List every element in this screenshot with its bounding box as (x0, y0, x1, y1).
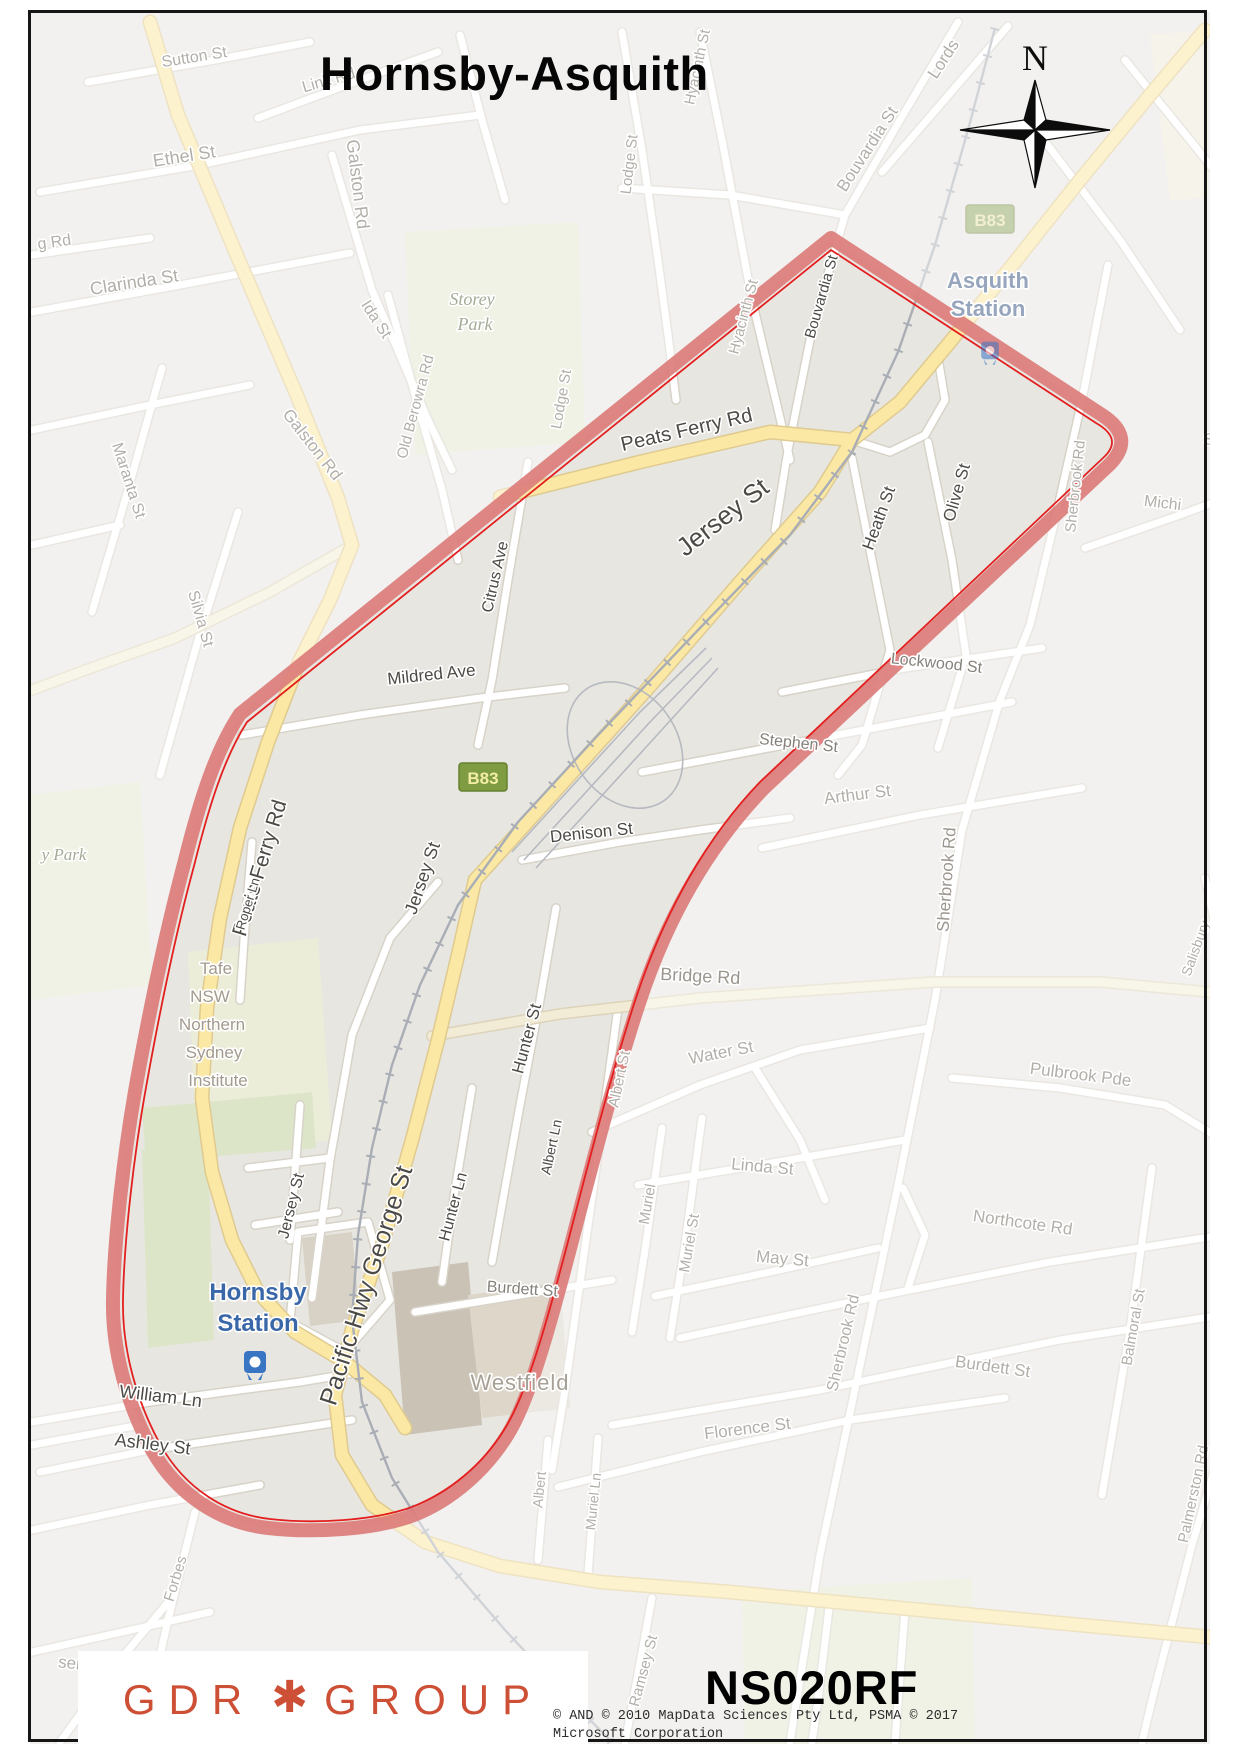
park-hornsby-nw-park-b (142, 1144, 214, 1348)
svg-text:Hornsby: Hornsby (209, 1279, 307, 1306)
route-badge-b83-0: B83 (459, 763, 507, 791)
label-y-park: y Park (40, 845, 87, 864)
building-westfield-block-a (392, 1262, 482, 1435)
compass-rose: N (940, 18, 1130, 208)
label-tafe: Tafe (200, 959, 232, 978)
label-institute: Institute (188, 1071, 248, 1090)
logo-star-icon: ✱ (271, 1676, 308, 1720)
svg-text:Station: Station (951, 296, 1026, 321)
svg-text:B83: B83 (974, 211, 1005, 230)
map-layers: B83B83HornsbyStationAsquithStationSutton… (30, 12, 1240, 1744)
road-salisbury-st (1205, 878, 1240, 1050)
label-bridge-rd: Bridge Rd (660, 964, 741, 988)
label-westfield: Westfield (470, 1370, 569, 1395)
label-park: Park (457, 314, 494, 334)
gdr-group-logo: GDR ✱ GROUP (78, 1651, 588, 1748)
road-casing-salisbury-st (1205, 878, 1240, 1050)
svg-text:B83: B83 (467, 769, 498, 788)
svg-text:Station: Station (217, 1310, 298, 1337)
copyright-text: © AND © 2010 MapData Sciences Pty Ltd, P… (553, 1708, 1033, 1744)
north-label: N (1022, 38, 1048, 78)
page-title: Hornsby-Asquith (320, 46, 709, 101)
svg-text:Asquith: Asquith (947, 268, 1029, 293)
label-storey: Storey (449, 289, 494, 309)
label-sydney: Sydney (186, 1043, 243, 1062)
label-northern: Northern (179, 1015, 245, 1034)
logo-text-group: GROUP (324, 1676, 543, 1724)
label-nsw: NSW (190, 987, 230, 1006)
map-page: B83B83HornsbyStationAsquithStationSutton… (0, 0, 1240, 1754)
route-badge-b83-1: B83 (966, 205, 1014, 233)
logo-text-gdr: GDR (123, 1676, 255, 1724)
compass-star (960, 80, 1110, 188)
map-code: NS020RF (705, 1660, 918, 1715)
label-sto: Sto (1203, 430, 1229, 449)
map-canvas[interactable]: B83B83HornsbyStationAsquithStationSutton… (0, 0, 1240, 1754)
